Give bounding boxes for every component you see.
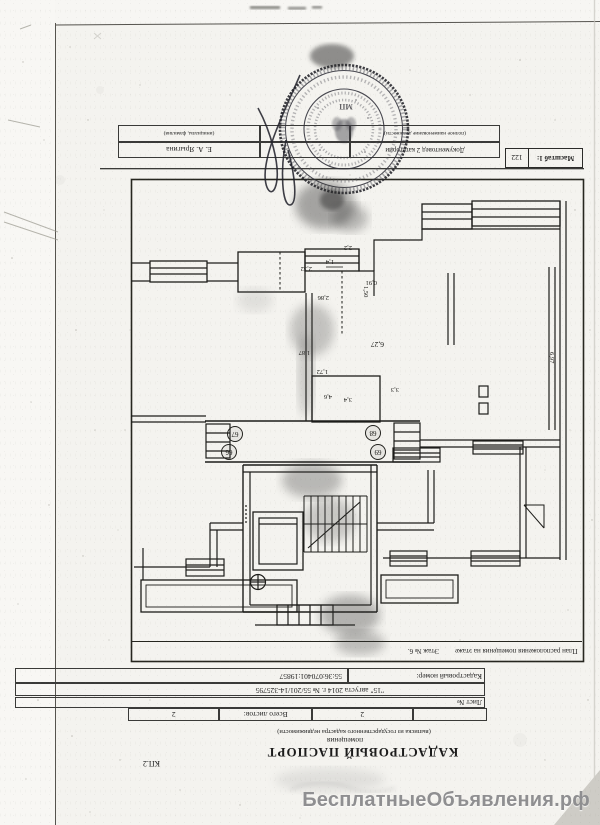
scale-value: 122 [506,149,529,167]
signer-position: Документовед 2 категории [350,142,500,158]
scanned-cadastral-passport-page: 2,32 1,4 2,2 2,86 1,50 0,91 6,27 1,87 1,… [0,0,600,825]
signer-name-note: (инициалы, фамилия) [118,125,260,142]
scale-label: Масштаб 1: [529,149,582,167]
signature-space [260,142,350,158]
watermark-text: БесплатныеОбъявления.рф [302,789,590,812]
cadastral-number-label: Кадастровый номер: [348,668,485,683]
sheet-counters-row: 2 Всего листов: 2 [128,708,487,721]
sheet-number-value: 2 [312,708,413,721]
sheet-empty-cell [413,708,487,721]
signature-space-note [260,125,350,142]
page-title: КАДАСТРОВЫЙ ПАСПОРТ [255,744,470,760]
plan-caption: План расположения помещения на этаже [455,647,582,655]
scale-box: Масштаб 1: 122 [505,148,583,168]
form-code: КП.2 [100,759,160,768]
plan-floor-label: Этаж № 6. [408,647,439,655]
cadastral-number-value: 55:36:070401:19857 [15,668,348,683]
sheet-number-label-row: Лист № [15,697,485,708]
plan-caption-row: План расположения помещения на этаже Эта… [132,642,583,660]
doc-date-number: "15" августа 2014 г. № 55/201/14-325795 [15,683,485,696]
signer-position-note: (полное наименование должности) [350,125,500,142]
cadastral-number-row: Кадастровый номер: 55:36:070401:19857 [15,668,485,683]
page-subtitle-note: (выписка из государственного кадастра не… [254,728,454,735]
footer-separator-line [100,168,584,169]
signature-block: Документовед 2 категории Е. А. Ярыгина (… [118,125,500,158]
document-text-layer: КП.2 КАДАСТРОВЫЙ ПАСПОРТ помещения (выпи… [0,0,600,825]
sheet-total-value: 2 [128,708,220,721]
sheet-total-label: Всего листов: [220,708,312,721]
signer-name: Е. А. Ярыгина [118,142,260,158]
page-subtitle: помещения [265,736,425,745]
